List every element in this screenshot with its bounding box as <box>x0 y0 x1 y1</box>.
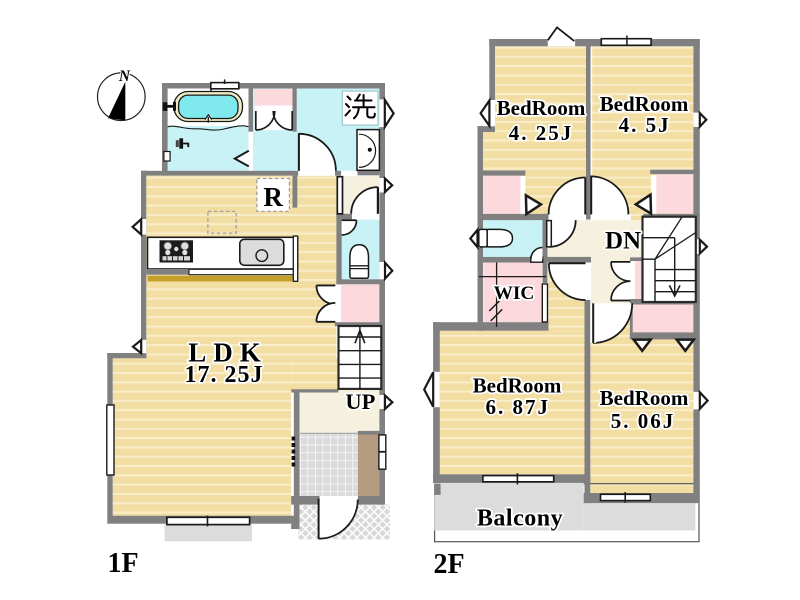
svg-text:2F: 2F <box>433 549 464 580</box>
svg-text:WIC: WIC <box>494 283 535 304</box>
svg-text:BedRoom: BedRoom <box>497 96 586 120</box>
svg-text:Balcony: Balcony <box>477 506 563 532</box>
svg-text:N: N <box>118 68 131 85</box>
svg-text:4. 5J: 4. 5J <box>619 113 671 137</box>
svg-text:R: R <box>263 182 283 212</box>
svg-text:17. 25J: 17. 25J <box>185 362 264 388</box>
svg-text:DN: DN <box>605 228 641 255</box>
svg-text:BedRoom: BedRoom <box>473 374 562 398</box>
svg-text:5. 06J: 5. 06J <box>611 409 676 433</box>
svg-text:4. 25J: 4. 25J <box>509 121 574 145</box>
svg-text:6. 87J: 6. 87J <box>485 395 550 419</box>
svg-text:BedRoom: BedRoom <box>600 386 689 410</box>
svg-text:UP: UP <box>345 389 375 414</box>
svg-text:1F: 1F <box>107 548 138 579</box>
